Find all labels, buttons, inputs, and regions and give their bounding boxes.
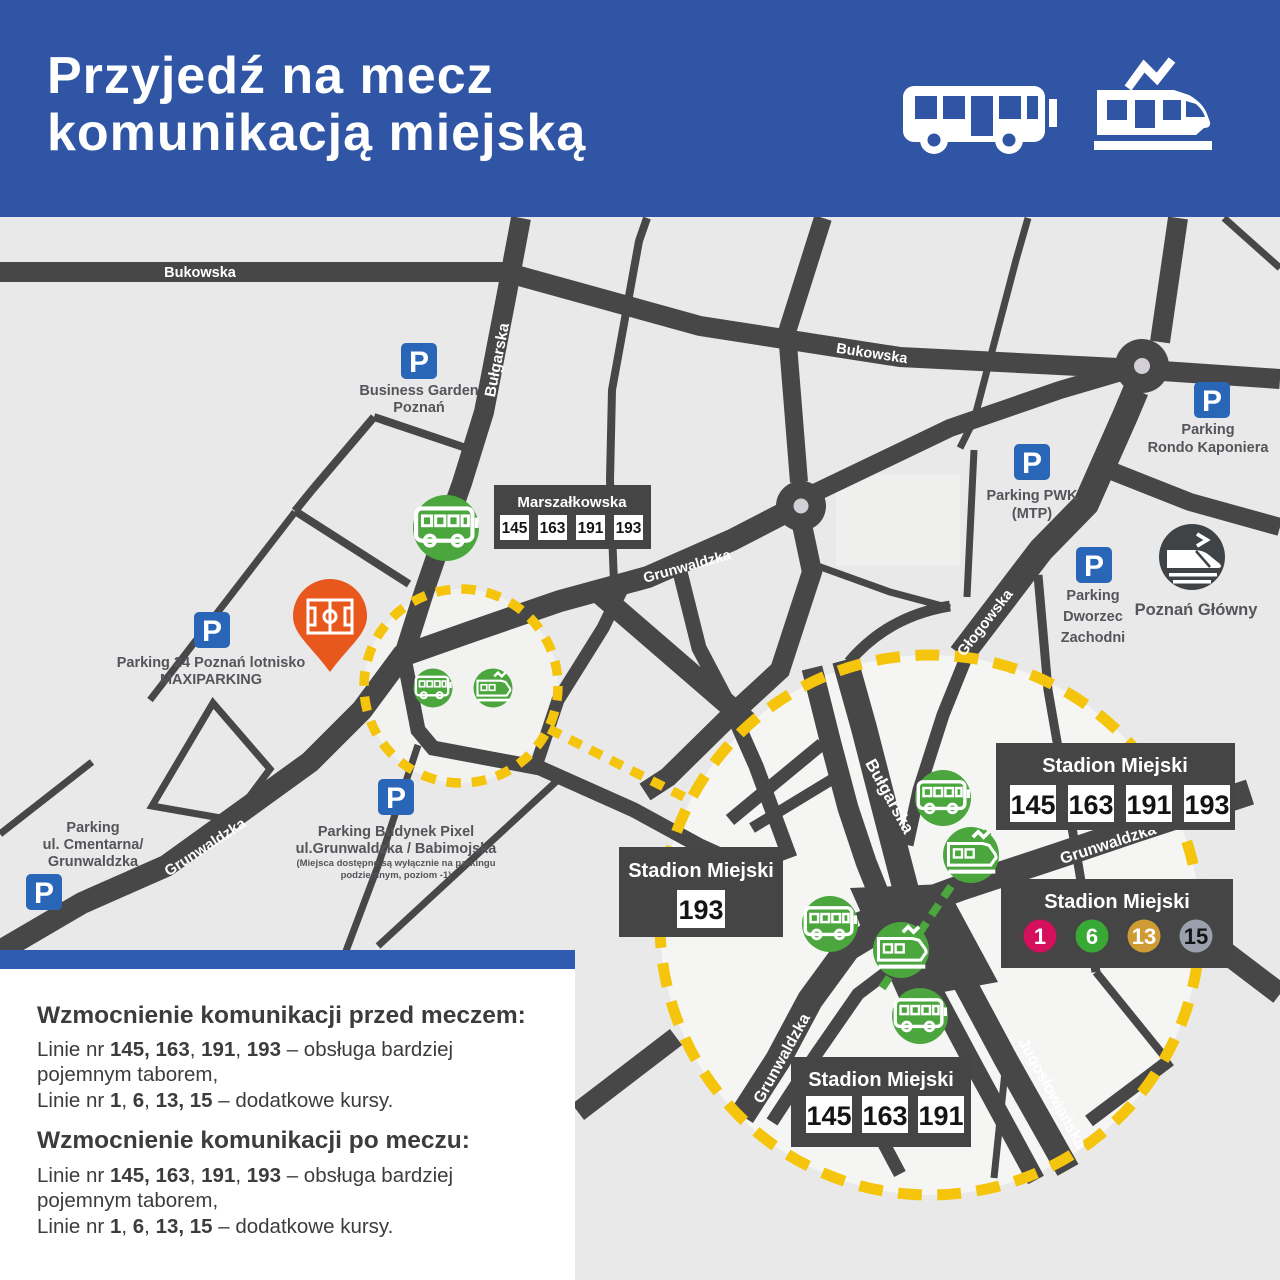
svg-text:6: 6: [1086, 924, 1098, 949]
svg-text:Stadion Miejski: Stadion Miejski: [628, 860, 774, 882]
svg-text:145: 145: [806, 1101, 851, 1131]
svg-text:Marszałkowska: Marszałkowska: [517, 494, 627, 511]
svg-text:Linie nr 1, 6, 13, 15 – dodatk: Linie nr 1, 6, 13, 15 – dodatkowe kursy.: [37, 1215, 393, 1238]
svg-text:145: 145: [1010, 790, 1055, 820]
svg-text:Wzmocnienie komunikacji przed: Wzmocnienie komunikacji przed meczem:: [37, 1002, 526, 1029]
svg-text:193: 193: [678, 895, 723, 925]
svg-text:193: 193: [1184, 790, 1229, 820]
svg-text:Bukowska: Bukowska: [164, 265, 237, 281]
svg-text:191: 191: [918, 1101, 963, 1131]
svg-text:Linie nr 1, 6, 13, 15 – dodatk: Linie nr 1, 6, 13, 15 – dodatkowe kursy.: [37, 1089, 393, 1112]
svg-text:Stadion Miejski: Stadion Miejski: [808, 1069, 954, 1091]
svg-text:Parking Budynek Pixel: Parking Budynek Pixel: [318, 824, 474, 840]
svg-text:193: 193: [616, 520, 642, 537]
svg-text:Parking PWK: Parking PWK: [986, 488, 1078, 504]
svg-text:ul.Grunwaldzka / Babimojska: ul.Grunwaldzka / Babimojska: [296, 841, 498, 857]
svg-text:Parking: Parking: [1181, 422, 1234, 438]
svg-text:Linie nr 145, 163, 191, 193 –: Linie nr 145, 163, 191, 193 – obsługa ba…: [37, 1038, 453, 1061]
svg-text:Przyjedź na mecz: Przyjedź na mecz: [47, 47, 494, 105]
svg-text:Stadion Miejski: Stadion Miejski: [1044, 891, 1190, 913]
svg-text:pojemnym taborem,: pojemnym taborem,: [37, 1189, 218, 1212]
svg-text:Stadion Miejski: Stadion Miejski: [1042, 755, 1188, 777]
svg-text:Linie nr 145, 163, 191, 193 –: Linie nr 145, 163, 191, 193 – obsługa ba…: [37, 1164, 453, 1187]
svg-text:163: 163: [1068, 790, 1113, 820]
svg-text:(Miejsca dostępne są wyłącznie: (Miejsca dostępne są wyłącznie na parkin…: [296, 858, 495, 869]
svg-text:145: 145: [502, 520, 528, 537]
svg-text:Parking: Parking: [1066, 588, 1119, 604]
svg-text:ul. Cmentarna/: ul. Cmentarna/: [43, 837, 144, 853]
svg-text:Grunwaldzka: Grunwaldzka: [48, 854, 139, 870]
svg-text:MAXIPARKING: MAXIPARKING: [160, 672, 262, 688]
svg-text:Poznań Główny: Poznań Główny: [1135, 601, 1259, 619]
svg-text:191: 191: [578, 520, 604, 537]
svg-text:(MTP): (MTP): [1012, 506, 1052, 522]
svg-text:15: 15: [1184, 924, 1208, 949]
svg-text:Rondo Kaponiera: Rondo Kaponiera: [1148, 440, 1270, 456]
svg-text:13: 13: [1132, 924, 1156, 949]
svg-text:191: 191: [1126, 790, 1171, 820]
svg-text:1: 1: [1034, 924, 1046, 949]
svg-text:Zachodni: Zachodni: [1061, 630, 1125, 646]
svg-text:Business Garden: Business Garden: [359, 383, 478, 399]
svg-text:pojemnym taborem,: pojemnym taborem,: [37, 1063, 218, 1086]
svg-text:Dworzec: Dworzec: [1063, 609, 1123, 625]
svg-text:Poznań: Poznań: [393, 400, 445, 416]
svg-text:Parking: Parking: [66, 820, 119, 836]
svg-text:163: 163: [540, 520, 566, 537]
svg-text:komunikacją miejską: komunikacją miejską: [47, 104, 586, 162]
svg-text:163: 163: [862, 1101, 907, 1131]
svg-text:Wzmocnienie komunikacji po mec: Wzmocnienie komunikacji po meczu:: [37, 1127, 470, 1154]
svg-text:podziemnym, poziom -1): podziemnym, poziom -1): [341, 870, 452, 881]
svg-text:Parking 24 Poznań lotnisko: Parking 24 Poznań lotnisko: [117, 655, 306, 671]
